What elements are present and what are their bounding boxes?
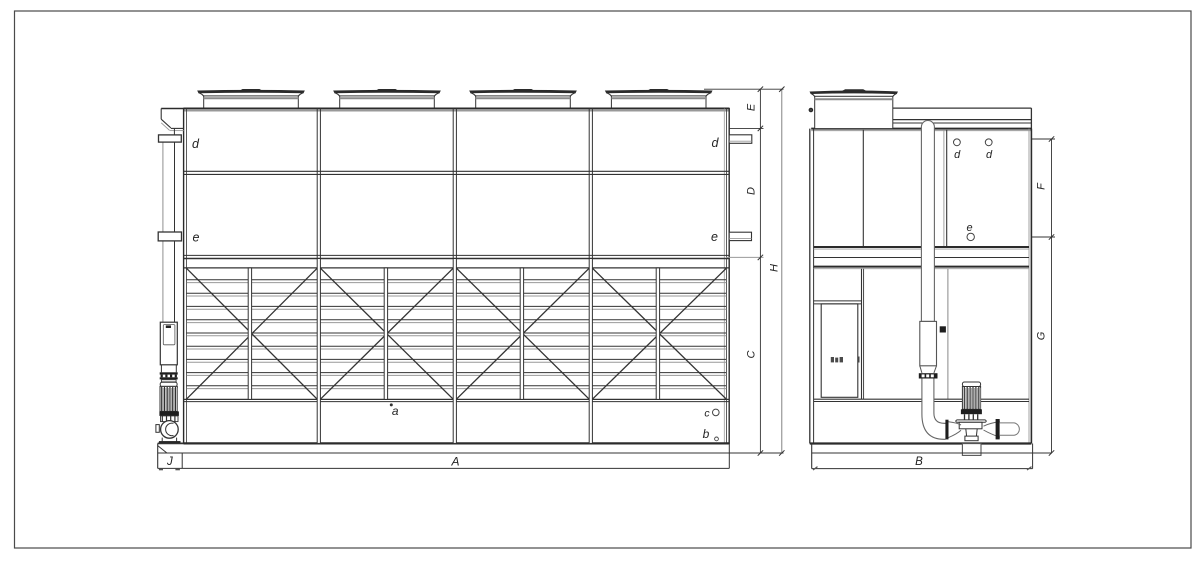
- svg-text:B: B: [915, 456, 923, 468]
- svg-text:e: e: [967, 222, 973, 234]
- svg-text:E: E: [745, 103, 757, 111]
- svg-text:D: D: [746, 187, 758, 195]
- svg-text:c: c: [704, 408, 710, 420]
- svg-text:J: J: [166, 456, 173, 468]
- svg-text:C: C: [745, 350, 757, 358]
- svg-text:H: H: [769, 264, 781, 272]
- svg-text:e: e: [711, 230, 718, 244]
- svg-text:e: e: [193, 231, 200, 245]
- svg-text:d: d: [954, 149, 961, 161]
- svg-text:a: a: [392, 404, 399, 418]
- svg-text:d: d: [712, 136, 720, 150]
- svg-text:A: A: [450, 455, 459, 469]
- svg-text:b: b: [703, 427, 710, 441]
- svg-text:d: d: [192, 137, 200, 151]
- svg-text:G: G: [1036, 331, 1048, 340]
- svg-text:d: d: [986, 149, 993, 161]
